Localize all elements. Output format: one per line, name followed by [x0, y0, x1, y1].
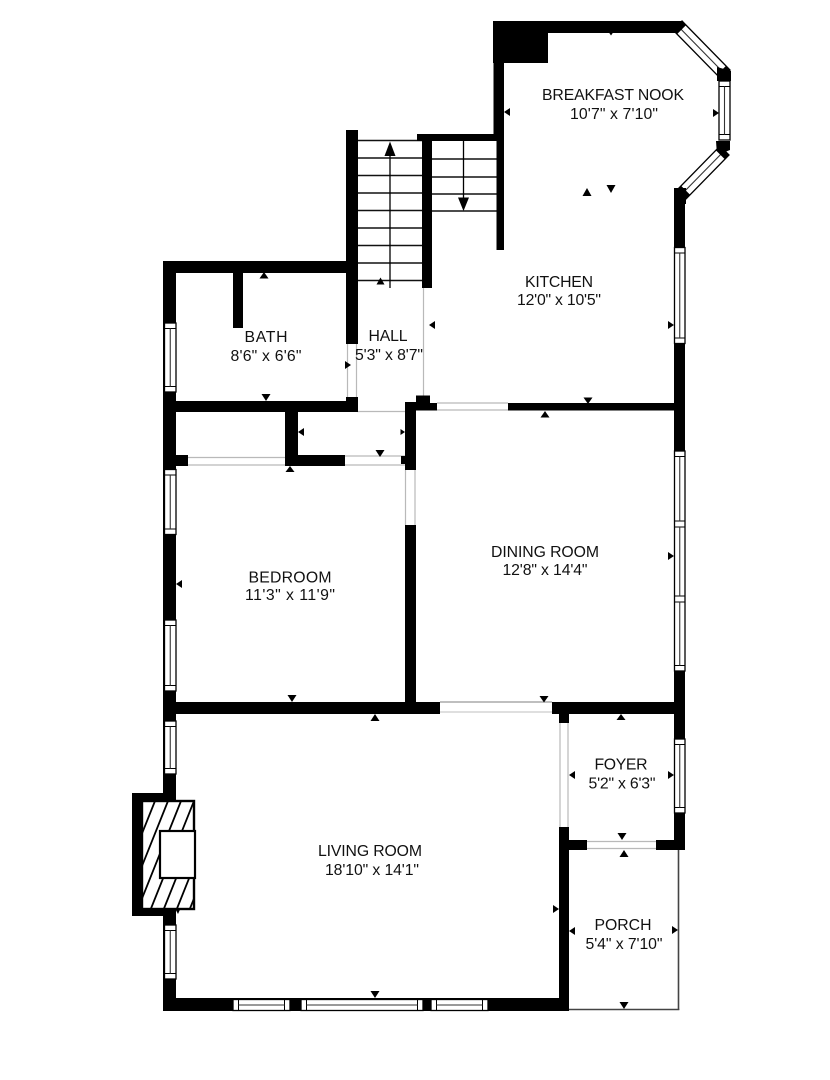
svg-text:12'0" x 10'5": 12'0" x 10'5"	[517, 292, 601, 309]
svg-text:PORCH: PORCH	[595, 917, 652, 934]
svg-text:12'8" x 14'4": 12'8" x 14'4"	[503, 562, 588, 579]
svg-text:5'3" x 8'7": 5'3" x 8'7"	[355, 347, 423, 364]
svg-text:11'3" x 11'9": 11'3" x 11'9"	[245, 587, 335, 604]
svg-text:HALL: HALL	[369, 328, 408, 345]
svg-text:LIVING ROOM: LIVING ROOM	[318, 843, 422, 860]
svg-text:BREAKFAST NOOK: BREAKFAST NOOK	[542, 87, 684, 104]
svg-text:18'10" x 14'1": 18'10" x 14'1"	[325, 862, 419, 879]
svg-text:BATH: BATH	[245, 329, 288, 346]
svg-text:10'7" x 7'10": 10'7" x 7'10"	[570, 106, 658, 123]
svg-text:5'2" x 6'3": 5'2" x 6'3"	[589, 776, 656, 793]
svg-text:FOYER: FOYER	[595, 757, 648, 774]
svg-text:8'6" x 6'6": 8'6" x 6'6"	[231, 348, 302, 365]
svg-text:BEDROOM: BEDROOM	[249, 570, 332, 587]
svg-text:DINING ROOM: DINING ROOM	[491, 544, 599, 561]
svg-text:5'4" x 7'10": 5'4" x 7'10"	[586, 936, 663, 953]
svg-text:KITCHEN: KITCHEN	[525, 274, 593, 291]
